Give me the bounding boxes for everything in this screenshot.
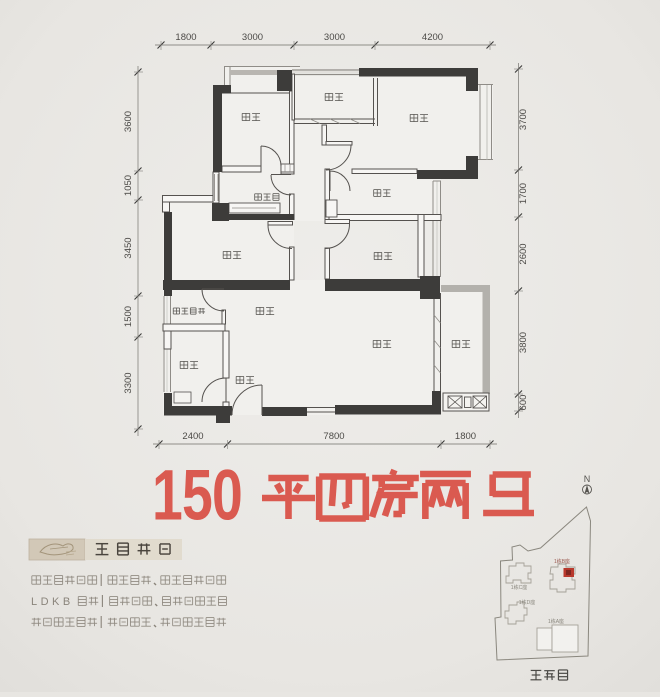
svg-text:150: 150 [152,456,242,535]
svg-text:7800: 7800 [323,431,344,442]
svg-text:2600: 2600 [518,243,529,264]
svg-text:3600: 3600 [123,111,134,132]
svg-text:2400: 2400 [182,431,203,442]
svg-text:600: 600 [518,395,529,411]
svg-text:1800: 1800 [455,431,476,442]
svg-text:3300: 3300 [123,372,134,393]
svg-text:1500: 1500 [123,306,134,327]
svg-text:4200: 4200 [422,32,443,43]
svg-text:LDKB: LDKB [31,596,74,608]
svg-text:1050: 1050 [123,175,134,196]
svg-text:1栋A座: 1栋A座 [548,618,564,625]
svg-text:3800: 3800 [518,332,529,353]
svg-text:1栋B座: 1栋B座 [554,558,570,565]
svg-text:1栋D座: 1栋D座 [519,599,535,606]
svg-text:3700: 3700 [518,109,529,130]
svg-text:1栋C座: 1栋C座 [511,584,527,591]
svg-text:3000: 3000 [242,32,263,43]
svg-text:3450: 3450 [123,237,134,258]
svg-text:N: N [584,474,591,484]
svg-text:3000: 3000 [324,32,345,43]
svg-text:1700: 1700 [518,183,529,204]
svg-text:1800: 1800 [175,32,196,43]
